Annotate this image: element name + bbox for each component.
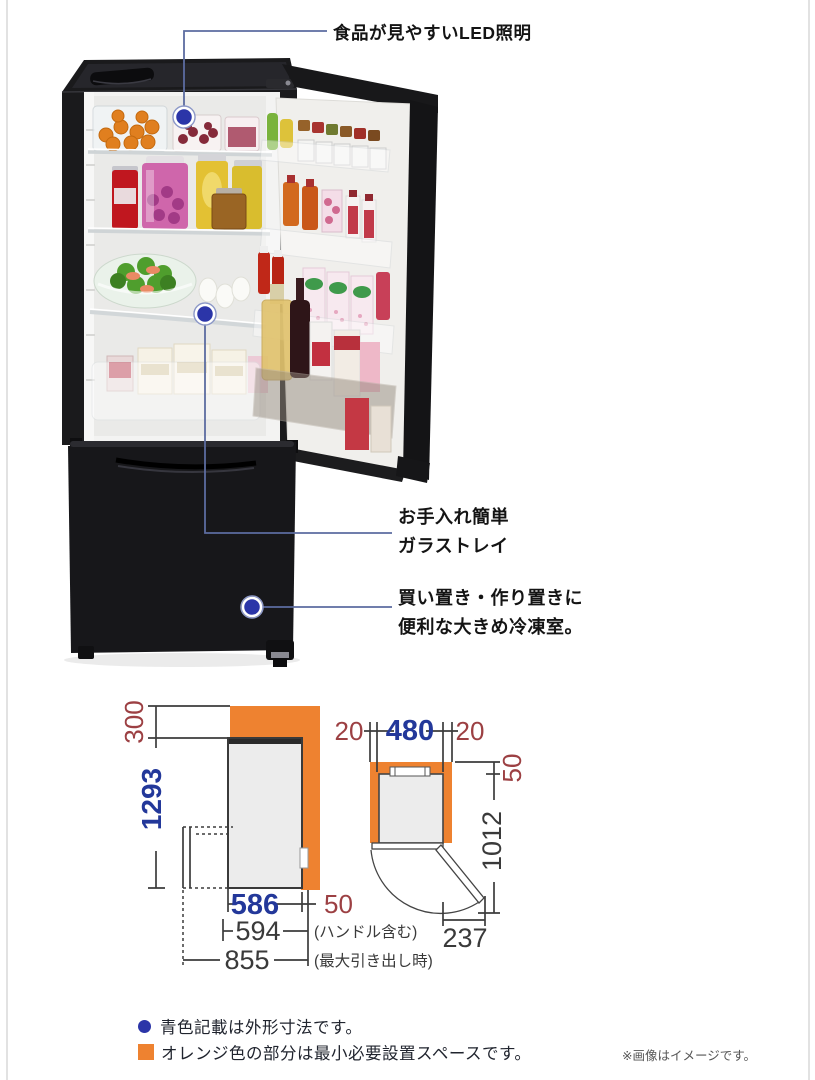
crisper-front [92, 362, 260, 420]
right-page-edge [808, 0, 810, 1080]
side-fridge-body [228, 738, 302, 888]
top-fridge-back-detail [390, 767, 430, 776]
top-door-closed [372, 843, 443, 849]
dim-depth-drawer-open-note: (最大引き出し時) [314, 952, 433, 970]
top-view-diagram: 20 480 20 50 1012 237 [335, 715, 527, 953]
legend-orange-row: オレンジ色の部分は最小必要設置スペースです。 [138, 1040, 531, 1064]
freezer-callout: 買い置き・作り置きに 便利な大きめ冷凍室。 [398, 584, 583, 642]
dim-door-swing-width: 237 [442, 923, 487, 953]
fridge-interior [84, 92, 280, 443]
dim-top-rear-clearance: 50 [497, 754, 527, 783]
top-fridge-body [379, 774, 443, 843]
fridge-photo [0, 0, 460, 690]
dim-depth-with-handle: 594 [235, 916, 280, 946]
dim-depth-drawer-open: 855 [224, 945, 269, 975]
honey-jar [212, 194, 246, 229]
blue-dot-icon [138, 1020, 151, 1033]
side-fridge-handle [300, 848, 308, 868]
tray-callout: お手入れ簡単 ガラストレイ [398, 503, 509, 561]
dim-body-width: 480 [386, 715, 434, 747]
legend-orange-text: オレンジ色の部分は最小必要設置スペースです。 [161, 1040, 531, 1064]
freezer-foot-left [78, 646, 94, 659]
legend-blue-text: 青色記載は外形寸法です。 [160, 1014, 362, 1038]
tray-callout-line1: お手入れ簡単 [398, 503, 509, 532]
led-callout-label: 食品が見やすいLED照明 [333, 20, 532, 45]
side-drawer-open [183, 827, 233, 888]
dimension-diagram: 300 1293 586 50 594 (ハンドル含む) 855 (最大引き出し… [0, 690, 580, 980]
dim-depth-door-open: 1012 [477, 811, 507, 871]
fridge-door-open [253, 64, 438, 482]
dim-left-clearance: 20 [335, 716, 364, 746]
freezer-door [68, 442, 296, 653]
image-disclaimer: ※画像はイメージです。 [622, 1045, 756, 1064]
freezer-callout-line2: 便利な大きめ冷凍室。 [398, 613, 583, 642]
page: { "callouts": { "led": { "label": "食品が見や… [0, 0, 815, 1080]
tray-marker-dot [194, 303, 216, 325]
freezer-marker-dot [241, 596, 263, 618]
dim-depth-with-handle-note: (ハンドル含む) [314, 923, 417, 941]
led-marker-dot [173, 106, 195, 128]
wine-bottle [290, 300, 310, 378]
dim-right-clearance: 20 [456, 716, 485, 746]
dim-side-rear-clearance: 50 [324, 889, 353, 919]
freezer-callout-line1: 買い置き・作り置きに [398, 584, 583, 613]
tray-callout-line2: ガラストレイ [398, 532, 509, 561]
dim-top-clearance: 300 [119, 700, 149, 743]
orange-square-icon [138, 1044, 154, 1060]
dim-body-height: 1293 [136, 768, 167, 830]
legend-blue-row: 青色記載は外形寸法です。 [138, 1014, 362, 1038]
